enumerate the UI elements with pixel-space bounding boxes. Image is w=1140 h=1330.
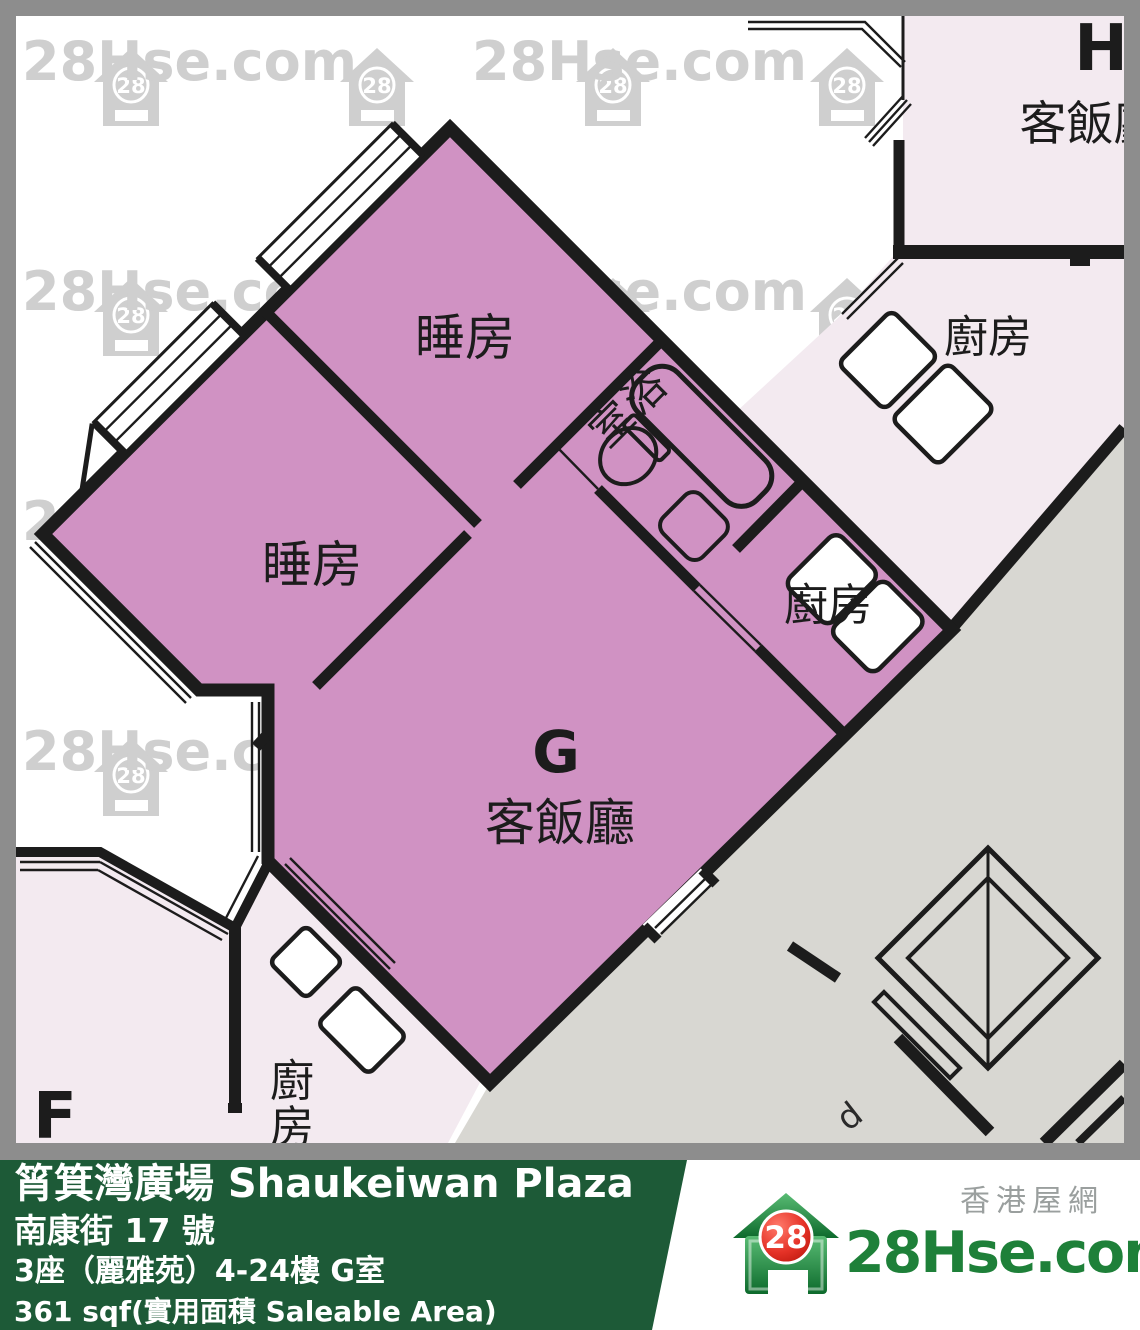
unit-h-letter: H — [1074, 12, 1128, 86]
estate-block-info: 3座（麗雅苑）4-24樓 G室 — [0, 1256, 720, 1288]
footer: 筲箕灣廣場 Shaukeiwan Plaza 南康街 17 號 3座（麗雅苑）4… — [0, 1160, 1140, 1330]
logo-wordmark: 28Hse.com — [845, 1220, 1140, 1286]
unit-f-kitchen-label: 廚房 — [270, 1056, 314, 1153]
unit-h-kitchen-label: 廚房 — [944, 312, 1032, 363]
bedroom1-label: 睡房 — [415, 309, 515, 367]
unit-f-letter: F — [33, 1080, 77, 1154]
footer-green-bar: 筲箕灣廣場 Shaukeiwan Plaza 南康街 17 號 3座（麗雅苑）4… — [0, 1160, 720, 1330]
logo-house-icon: 28 — [730, 1190, 842, 1302]
floor-plan: 28 28Hse.com 28Hse.com 28Hse.com 28Hs — [0, 0, 1140, 1160]
floorplan-page: 28 28Hse.com 28Hse.com 28Hse.com 28Hs — [0, 0, 1140, 1330]
logo-badge: 28 — [764, 1220, 807, 1256]
estate-area-info: 361 sqf(實用面積 Saleable Area) — [0, 1297, 720, 1327]
estate-address: 南康街 17 號 — [0, 1213, 720, 1249]
logo-tagline: 香港屋網 — [960, 1176, 1104, 1220]
site-logo: 28 28Hse.com 香港屋網 — [730, 1190, 1140, 1330]
unit-h-living-label: 客飯廳 — [1020, 97, 1140, 152]
unit-g-letter: G — [532, 718, 580, 786]
watermark-text: 28Hse.com — [22, 30, 357, 93]
watermark-text: 28Hse.com — [472, 30, 807, 93]
estate-title: 筲箕灣廣場 Shaukeiwan Plaza — [0, 1163, 720, 1206]
bedroom2-label: 睡房 — [262, 536, 362, 594]
unit-g-living-label: 客飯廳 — [485, 794, 635, 852]
unit-g-kitchen-label: 廚房 — [784, 580, 872, 631]
